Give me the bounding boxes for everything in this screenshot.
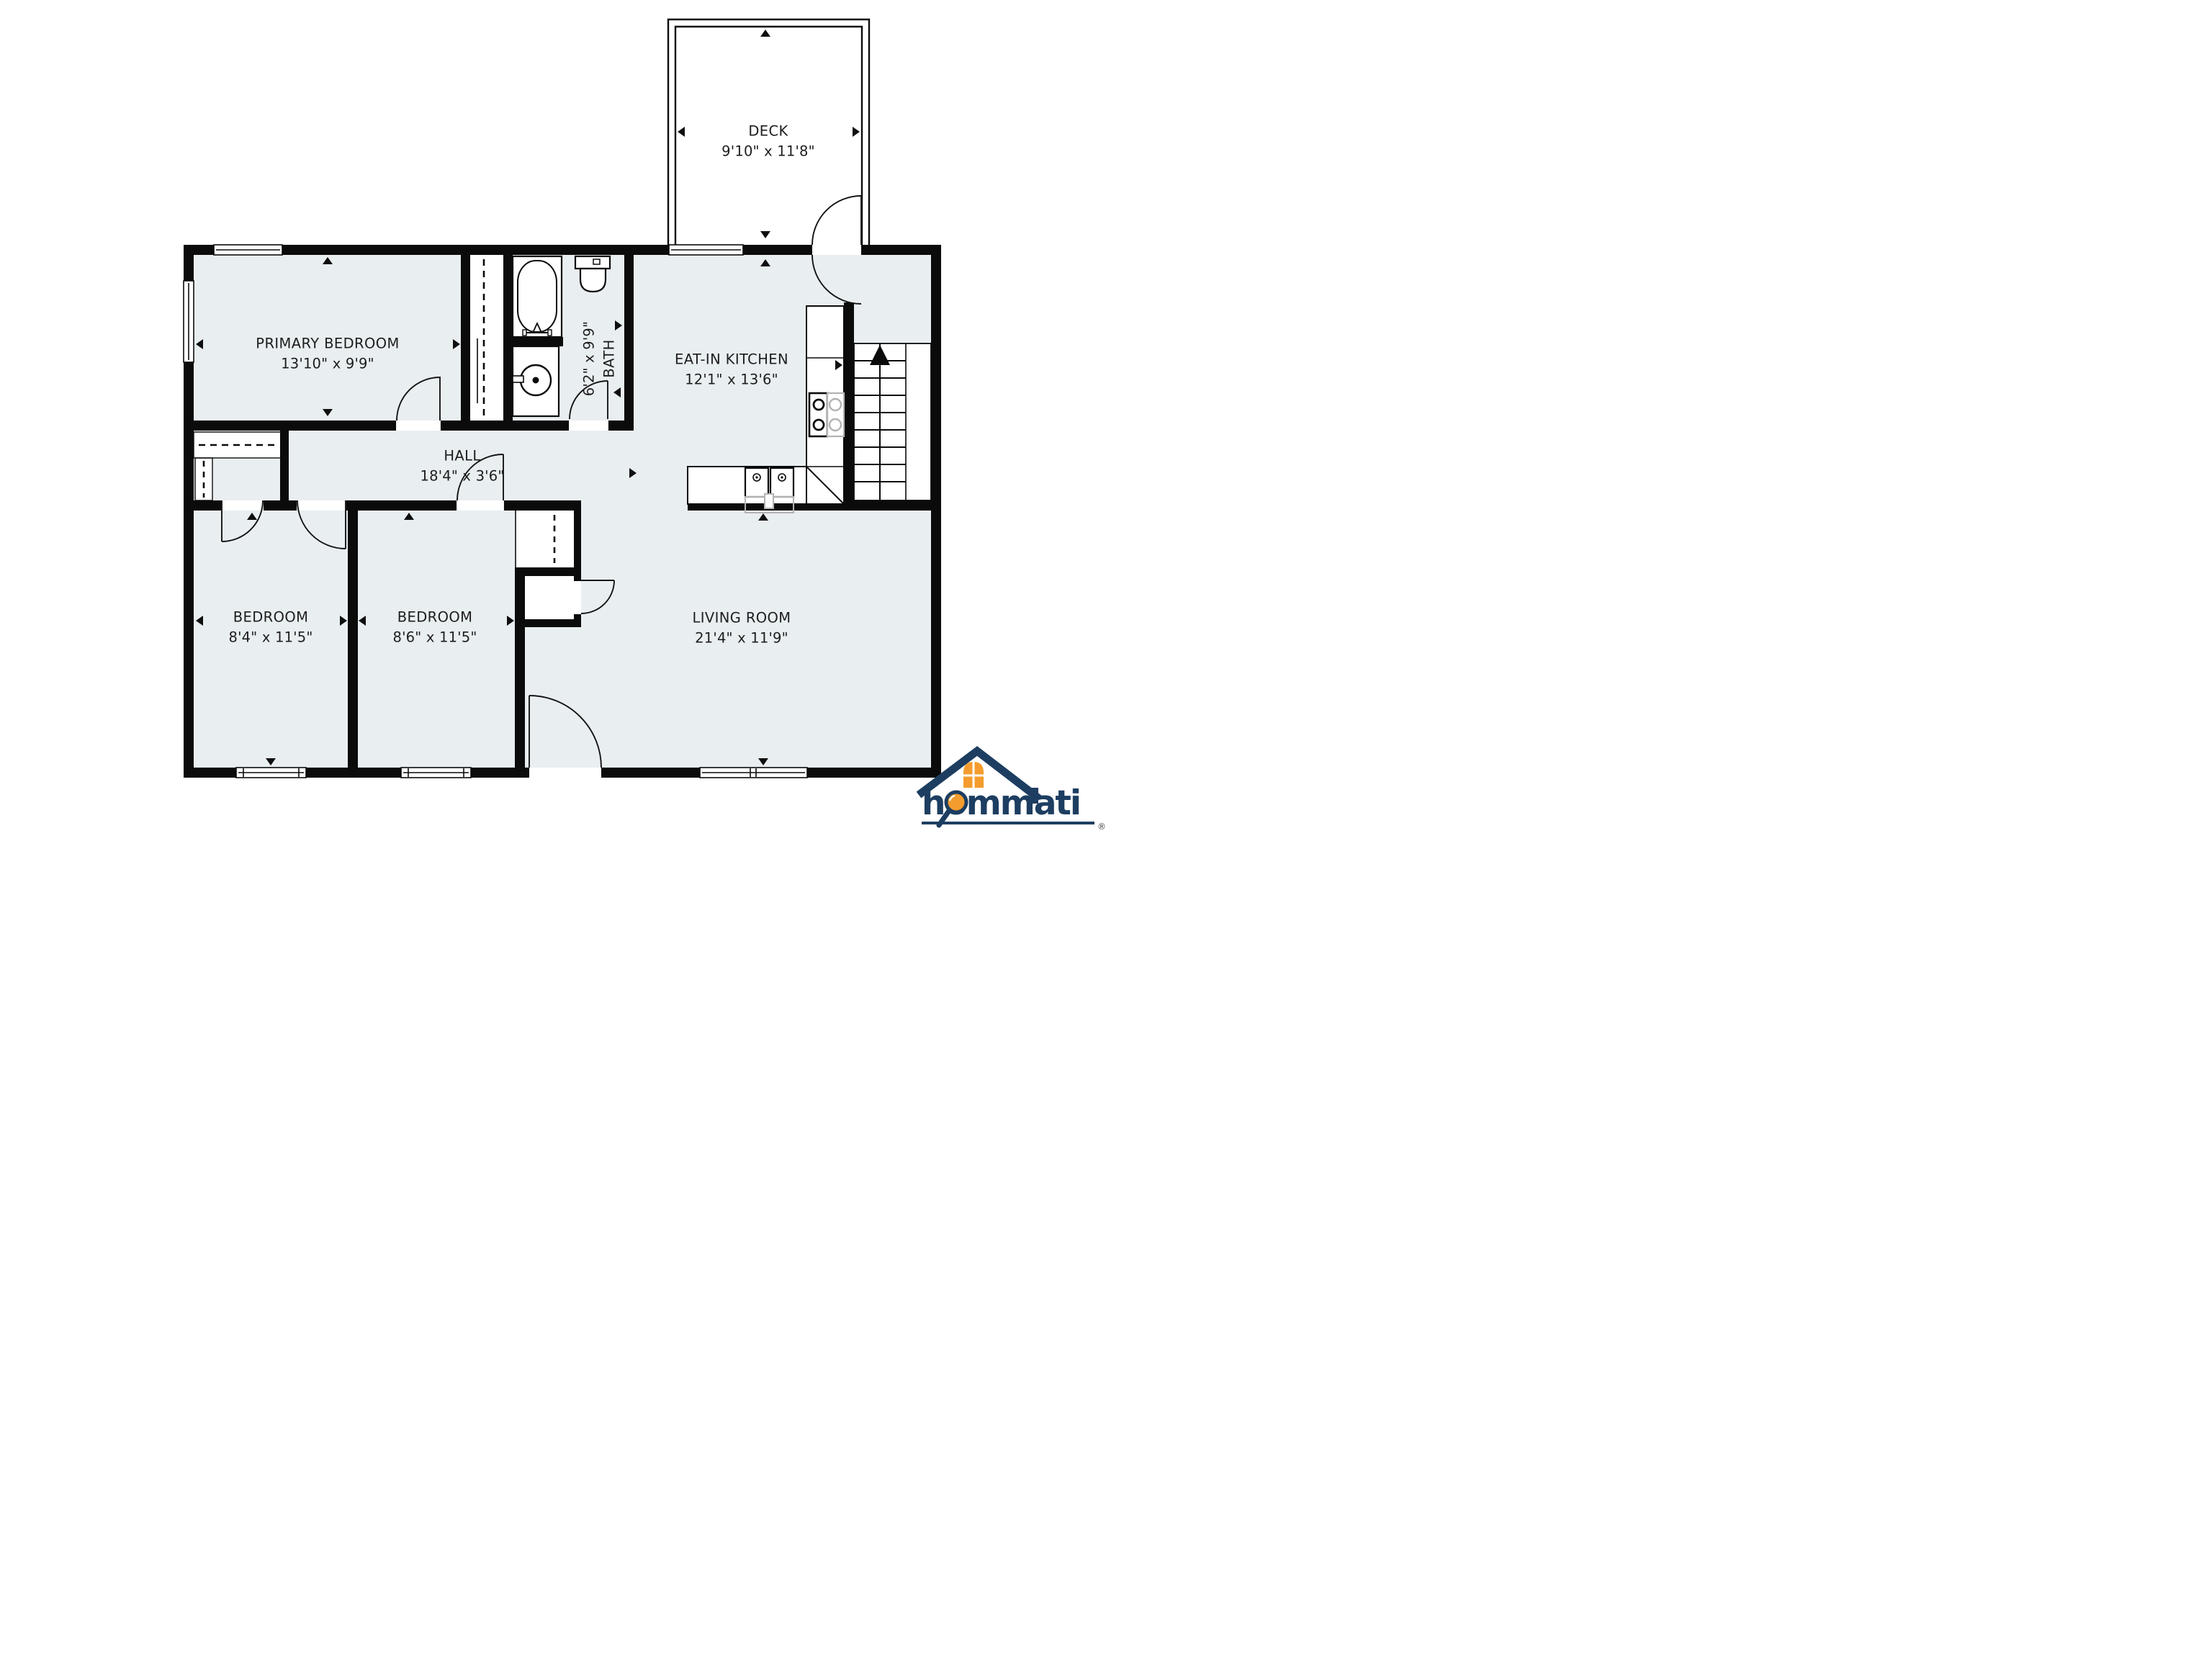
room-dims: 8'4" x 11'5": [228, 628, 313, 648]
room-name: EAT-IN KITCHEN: [675, 350, 788, 370]
room-label-bedroom-left: BEDROOM 8'4" x 11'5": [228, 608, 313, 649]
room-name: BATH: [600, 321, 620, 396]
room-dims: 8'6" x 11'5": [392, 628, 477, 648]
registered-mark: ®: [1097, 822, 1106, 829]
room-label-deck: DECK 9'10" x 11'8": [721, 122, 815, 163]
bathtub: [513, 256, 562, 337]
stove: [809, 393, 844, 436]
room-name: PRIMARY BEDROOM: [256, 334, 399, 354]
room-label-bath: 6'2" x 9'9" BATH: [580, 321, 621, 396]
room-dims: 6'2" x 9'9": [580, 321, 600, 396]
hommati-logo: hommati ®: [919, 751, 1106, 829]
floor-plan-page: hommati ® DECK 9'10" x 11'8" PRIMARY BED…: [0, 0, 1106, 829]
room-dims: 12'1" x 13'6": [675, 370, 788, 390]
room-dims: 13'10" x 9'9": [256, 354, 399, 374]
room-name: LIVING ROOM: [692, 608, 791, 629]
room-name: HALL: [420, 446, 504, 467]
room-dims: 21'4" x 11'9": [692, 629, 791, 649]
room-label-hall: HALL 18'4" x 3'6": [420, 446, 504, 487]
room-name: DECK: [721, 122, 815, 142]
room-name: BEDROOM: [392, 608, 477, 628]
room-dims: 18'4" x 3'6": [420, 467, 504, 487]
room-name: BEDROOM: [228, 608, 313, 628]
room-label-primary-bedroom: PRIMARY BEDROOM 13'10" x 9'9": [256, 334, 399, 375]
room-label-bedroom-middle: BEDROOM 8'6" x 11'5": [392, 608, 477, 649]
room-label-eat-in-kitchen: EAT-IN KITCHEN 12'1" x 13'6": [675, 350, 788, 391]
room-label-living-room: LIVING ROOM 21'4" x 11'9": [692, 608, 791, 649]
room-dims: 9'10" x 11'8": [721, 142, 815, 162]
bathroom-sink: [513, 346, 559, 416]
floor-plan-drawing: hommati ®: [0, 0, 1106, 829]
staircase: [854, 343, 931, 500]
